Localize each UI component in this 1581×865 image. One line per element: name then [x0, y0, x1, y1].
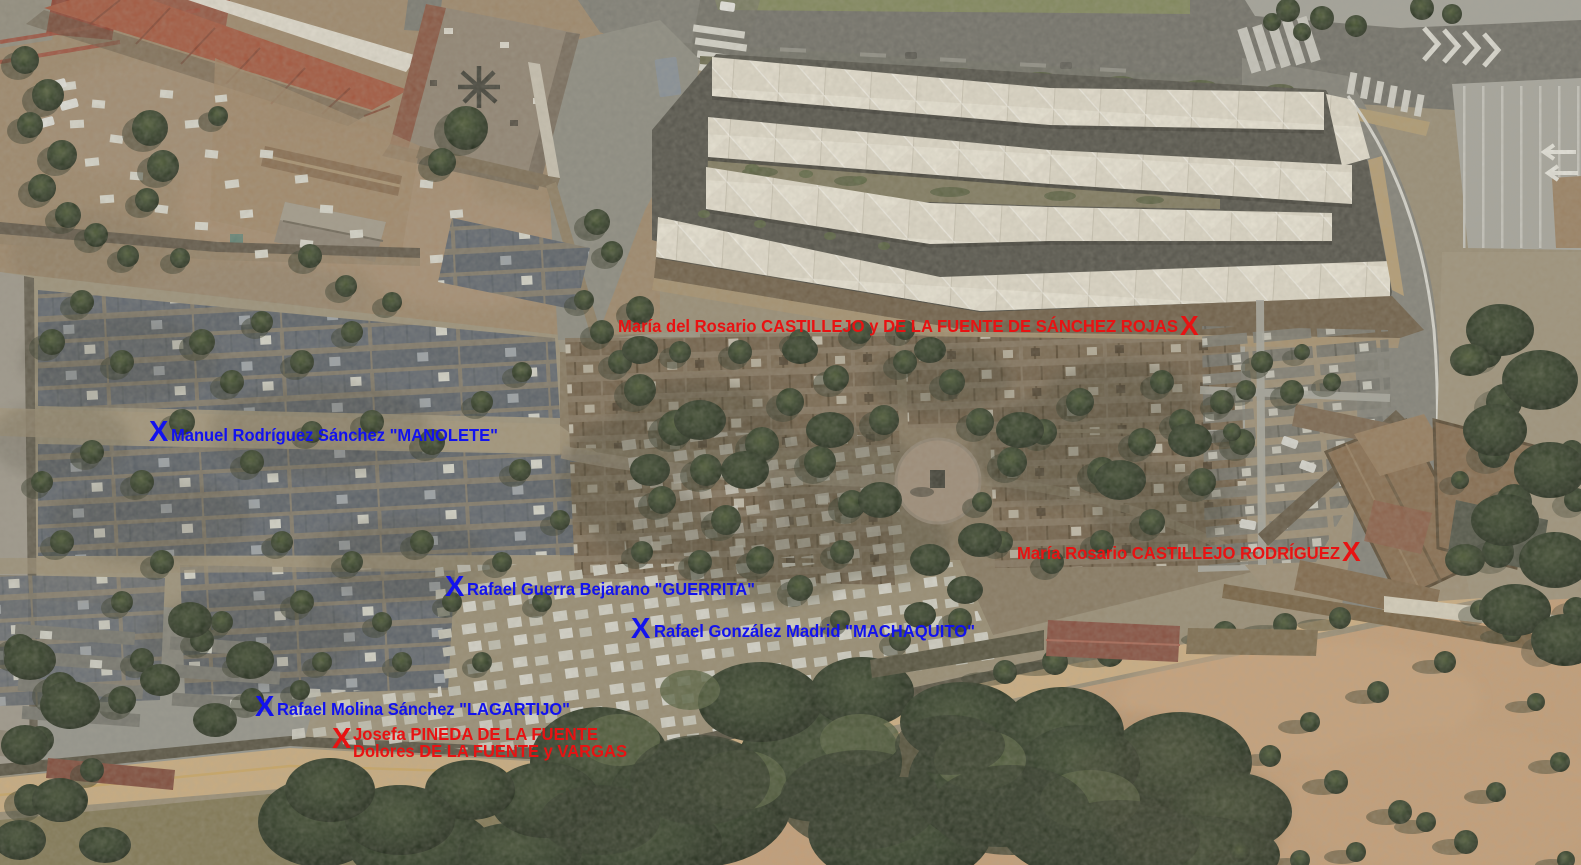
svg-text:Dolores DE LA FUENTE y VARGAS: Dolores DE LA FUENTE y VARGAS [353, 741, 627, 761]
svg-text:María Rosario CASTILLEJO RODRÍ: María Rosario CASTILLEJO RODRÍGUEZ [1017, 542, 1340, 563]
svg-text:Rafael Guerra Bejarano "GUERRI: Rafael Guerra Bejarano "GUERRITA" [467, 579, 755, 599]
svg-text:Manuel Rodríguez Sánchez "MANO: Manuel Rodríguez Sánchez "MANOLETE" [171, 425, 498, 445]
svg-text:Rafael Molina Sánchez "LAGARTI: Rafael Molina Sánchez "LAGARTIJO" [277, 699, 570, 719]
svg-text:X: X [149, 416, 169, 448]
svg-text:Rafael González Madrid "MACHAQ: Rafael González Madrid "MACHAQUITO" [654, 621, 975, 641]
svg-text:X: X [1180, 310, 1199, 341]
svg-text:X: X [332, 723, 352, 755]
svg-text:María del Rosario CASTILLEJO y: María del Rosario CASTILLEJO y DE LA FUE… [618, 315, 1178, 336]
svg-text:X: X [1342, 536, 1361, 567]
svg-text:X: X [255, 691, 275, 723]
svg-text:X: X [445, 571, 465, 603]
svg-text:X: X [631, 613, 651, 645]
